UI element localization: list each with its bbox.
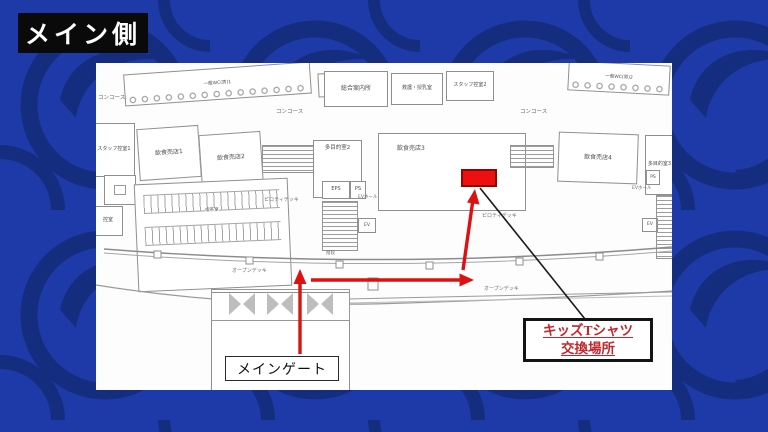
main-gate-label-text: メインゲート [237, 359, 327, 379]
route-arrow-head [460, 274, 475, 287]
kids-pointer-line [480, 188, 585, 319]
page-title: メイン側 [18, 13, 148, 53]
slide: { "title": "メイン側", "colors": { "backgrou… [0, 0, 768, 432]
kids-label-line1: キッズTシャツ [543, 322, 633, 340]
main-gate-label: メインゲート [225, 356, 339, 381]
kids-label-line2: 交換場所 [561, 340, 615, 358]
gate-arrow-head [294, 269, 307, 284]
exchange-arrow-line [463, 203, 473, 270]
floor-plan-panel: 一般WC(男)1 総合案内所 救護・授乳室 スタッフ控室2 一般WC(男)2 コ… [96, 63, 672, 390]
exchange-arrow-head [467, 189, 480, 205]
kids-exchange-label: キッズTシャツ 交換場所 [523, 318, 653, 362]
